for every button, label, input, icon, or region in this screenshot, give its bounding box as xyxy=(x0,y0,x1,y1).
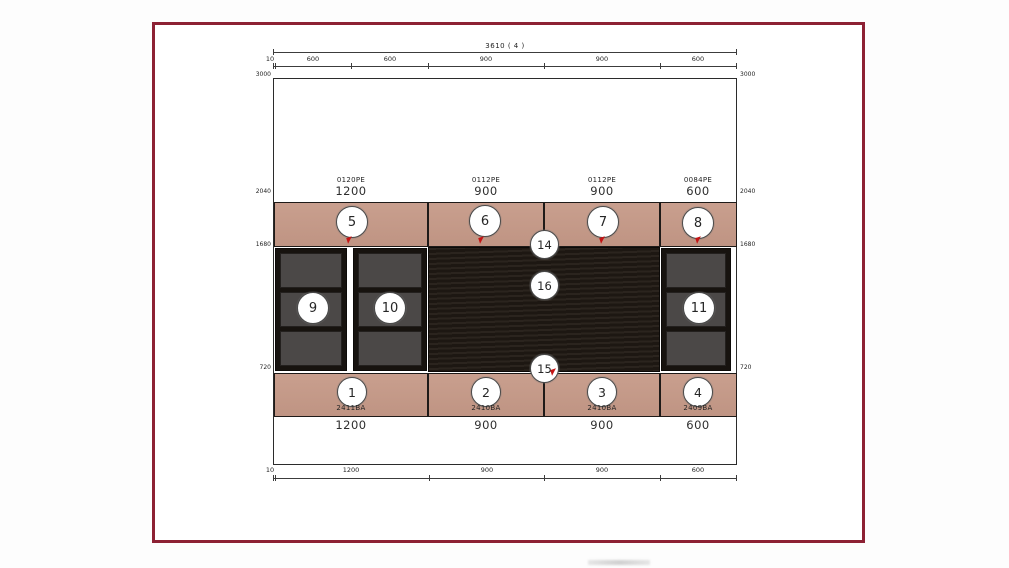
upper-cabinet-width: 900 xyxy=(557,185,647,197)
level-label-left: 720 xyxy=(240,364,271,371)
cabinet-number-bubble[interactable]: 1 xyxy=(337,377,367,407)
lower-cabinet-width: 1200 xyxy=(306,419,396,431)
dim-tick xyxy=(351,63,352,69)
cabinet-number-bubble[interactable]: 3 xyxy=(587,377,617,407)
dim-segment-label: 10 xyxy=(262,466,278,474)
dim-tick xyxy=(660,475,661,481)
shelf-number-bubble[interactable]: 11 xyxy=(683,292,715,324)
dim-segment-label: 900 xyxy=(466,55,506,63)
lower-cabinet-width: 900 xyxy=(441,419,531,431)
shelf-cell xyxy=(666,253,726,288)
marker-bubble-16[interactable]: 16 xyxy=(530,271,559,300)
dim-total-label: 3610 ( 4 ) xyxy=(455,42,555,50)
level-label-right: 2040 xyxy=(740,188,772,195)
page: 3610 ( 4 ) 10 600 600 900 900 600 3000 2… xyxy=(0,0,1009,568)
lower-cabinet-width: 900 xyxy=(557,419,647,431)
shelf-number-bubble[interactable]: 9 xyxy=(297,292,329,324)
upper-cabinet-code: 0112PE xyxy=(557,176,647,184)
dim-tick xyxy=(736,475,737,481)
dim-segment-label: 900 xyxy=(582,55,622,63)
upper-cabinet-code: 0084PE xyxy=(653,176,743,184)
dim-tick xyxy=(736,63,737,69)
dim-segment-label: 600 xyxy=(678,466,718,474)
cropped-text-fragment xyxy=(588,560,650,565)
cabinet-number-bubble[interactable]: 8 xyxy=(682,207,714,239)
dim-tick xyxy=(544,63,545,69)
lower-cabinet-code: 2410BA xyxy=(557,404,647,412)
dim-segment-label: 600 xyxy=(293,55,333,63)
dim-line-bottom xyxy=(273,478,737,479)
dim-segment-label: 1200 xyxy=(326,466,376,474)
dim-line-top-overall xyxy=(273,52,737,53)
shelf-cell xyxy=(666,331,726,366)
level-label-left: 3000 xyxy=(240,71,271,78)
level-label-right: 3000 xyxy=(740,71,772,78)
upper-cabinet-width: 600 xyxy=(653,185,743,197)
lower-cabinet-code: 2411BA xyxy=(306,404,396,412)
level-label-right: 1680 xyxy=(740,241,772,248)
upper-cabinet-width: 1200 xyxy=(306,185,396,197)
dim-segment-label: 900 xyxy=(467,466,507,474)
dim-tick xyxy=(660,63,661,69)
cabinet-number-bubble[interactable]: 2 xyxy=(471,377,501,407)
dim-tick xyxy=(275,475,276,481)
level-label-right: 720 xyxy=(740,364,772,371)
lower-cabinet-code: 2409BA xyxy=(653,404,743,412)
lower-cabinet-code: 2410BA xyxy=(441,404,531,412)
upper-cabinet-code: 0112PE xyxy=(441,176,531,184)
dim-segment-label: 600 xyxy=(370,55,410,63)
upper-cabinet-code: 0120PE xyxy=(306,176,396,184)
cabinet-number-bubble[interactable]: 6 xyxy=(469,205,501,237)
dim-tick xyxy=(273,63,274,69)
dim-line-top-segments xyxy=(273,66,737,67)
marker-bubble-14[interactable]: 14 xyxy=(530,230,559,259)
dim-tick xyxy=(736,49,737,55)
dim-tick xyxy=(428,63,429,69)
dim-tick xyxy=(275,63,276,69)
level-label-left: 1680 xyxy=(240,241,271,248)
shelf-number-bubble[interactable]: 10 xyxy=(374,292,406,324)
shelf-cell xyxy=(358,253,422,288)
dim-segment-label: 600 xyxy=(678,55,718,63)
dim-segment-label: 10 xyxy=(262,55,278,63)
dim-tick xyxy=(544,475,545,481)
upper-cabinet-width: 900 xyxy=(441,185,531,197)
shelf-cell xyxy=(358,331,422,366)
cabinet-number-bubble[interactable]: 5 xyxy=(336,206,368,238)
shelf-cell xyxy=(280,253,342,288)
cabinet-number-bubble[interactable]: 7 xyxy=(587,206,619,238)
dim-segment-label: 900 xyxy=(582,466,622,474)
dim-tick xyxy=(429,475,430,481)
shelf-cell xyxy=(280,331,342,366)
lower-cabinet-width: 600 xyxy=(653,419,743,431)
cabinet-number-bubble[interactable]: 4 xyxy=(683,377,713,407)
level-label-left: 2040 xyxy=(240,188,271,195)
dim-tick xyxy=(273,475,274,481)
